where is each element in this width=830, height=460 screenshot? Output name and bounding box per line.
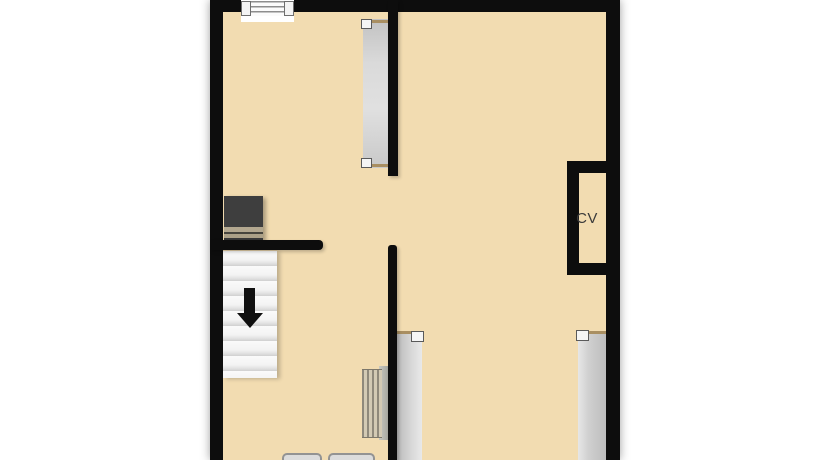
- furniture-dresser: [224, 196, 263, 242]
- door-upper: [363, 19, 388, 168]
- furniture-chair: [282, 453, 322, 460]
- door-hinge: [576, 330, 589, 341]
- furniture-chair: [328, 453, 375, 460]
- closet-wall-bottom: [567, 263, 618, 275]
- closet-label-text: CV: [576, 210, 598, 227]
- door-frame-line: [372, 164, 389, 167]
- door-bottom-right: [578, 332, 606, 460]
- door-frame-line: [372, 20, 389, 23]
- window-end-cap: [241, 1, 251, 16]
- radiator: [362, 369, 382, 438]
- down-arrow-icon: [237, 288, 263, 328]
- wall-right: [606, 0, 620, 460]
- door-hinge: [361, 158, 372, 168]
- door-frame-line: [396, 331, 412, 334]
- door-hinge: [411, 331, 424, 342]
- arrow-shaft: [244, 288, 255, 313]
- arrow-head: [237, 313, 263, 328]
- wall-left: [210, 0, 223, 460]
- window-glazing: [250, 1, 285, 16]
- wall-middle-upper: [388, 0, 398, 176]
- closet-wall-top: [567, 161, 618, 173]
- wall-stairwell: [210, 240, 323, 250]
- wall-middle-lower: [388, 245, 397, 460]
- door-bottom-middle: [396, 333, 422, 460]
- window-end-cap: [284, 1, 294, 16]
- door-frame-line: [589, 331, 607, 334]
- window: [241, 0, 294, 22]
- closet-label: CV: [567, 173, 607, 263]
- floor-plan: CV: [210, 0, 620, 460]
- door-hinge: [361, 19, 372, 29]
